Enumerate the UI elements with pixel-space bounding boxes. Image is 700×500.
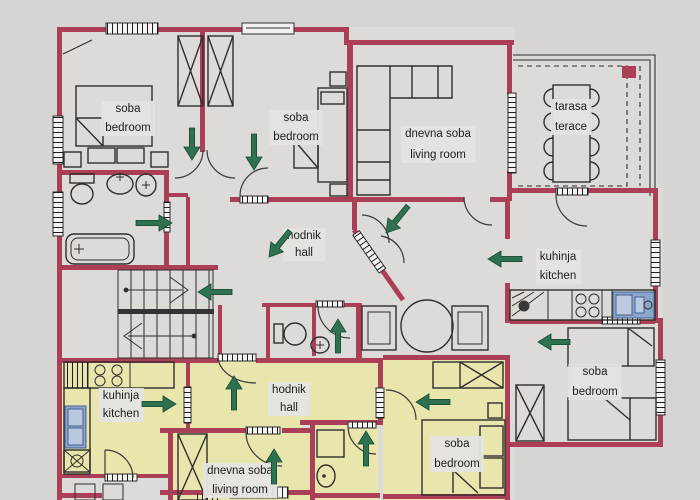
room-label-kitchen-lower: kuhinjakitchen [99, 388, 144, 422]
door-threshold [348, 422, 376, 428]
room-bedroom-lower [383, 360, 505, 500]
room-label-living-room-top: dnevna sobaliving room [401, 126, 475, 163]
svg-text:tarasa: tarasa [555, 101, 588, 113]
svg-text:dnevna soba: dnevna soba [405, 128, 471, 140]
window [53, 192, 63, 236]
door-threshold [184, 387, 191, 423]
terrace-pillar [622, 66, 636, 78]
svg-text:living room: living room [212, 484, 268, 496]
window [53, 116, 63, 164]
room-label-kitchen-right: kuhinjakitchen [536, 249, 581, 284]
door-threshold [246, 427, 280, 434]
svg-text:hall: hall [295, 247, 313, 259]
svg-text:soba: soba [284, 112, 310, 124]
door-threshold [240, 196, 268, 203]
room-label-bedroom-top-left: sobabedroom [101, 101, 154, 136]
svg-text:kitchen: kitchen [103, 408, 139, 420]
svg-text:hodnik: hodnik [287, 230, 321, 242]
floor-plan-image: sobabedroomsobabedroomdnevna sobaliving … [0, 0, 700, 500]
floor-plan-svg: sobabedroomsobabedroomdnevna sobaliving … [0, 0, 700, 500]
window [656, 360, 665, 415]
svg-text:living room: living room [410, 149, 466, 161]
door-threshold [556, 188, 588, 195]
svg-text:soba: soba [583, 366, 609, 378]
door-threshold [105, 474, 137, 481]
svg-text:hodnik: hodnik [272, 384, 306, 396]
room-label-living-room-lower: dnevna sobaliving room [203, 463, 277, 498]
svg-text:bedroom: bedroom [105, 122, 150, 134]
svg-text:bedroom: bedroom [572, 386, 617, 398]
door-threshold [218, 354, 256, 361]
room-label-bedroom-right: sobabedroom [568, 364, 621, 400]
door-threshold [316, 301, 344, 307]
svg-text:bedroom: bedroom [434, 458, 479, 470]
room-label-bedroom-top-center: sobabedroom [269, 110, 322, 145]
room-label-bedroom-lower: sobabedroom [430, 436, 483, 472]
terrace-window [508, 93, 516, 173]
svg-text:terace: terace [555, 121, 587, 133]
door-threshold [376, 388, 384, 418]
svg-text:soba: soba [116, 103, 142, 115]
svg-text:kitchen: kitchen [540, 270, 576, 282]
window [242, 23, 294, 34]
svg-text:kuhinja: kuhinja [103, 390, 140, 402]
window [651, 240, 660, 286]
svg-text:soba: soba [445, 438, 471, 450]
svg-text:hall: hall [280, 402, 298, 414]
window [106, 23, 158, 34]
svg-text:dnevna soba: dnevna soba [207, 465, 273, 477]
room-label-terrace: tarasaterace [551, 99, 592, 135]
svg-text:kuhinja: kuhinja [540, 251, 577, 263]
svg-text:bedroom: bedroom [273, 131, 318, 143]
room-label-hall-lower: hodnikhall [268, 382, 310, 416]
